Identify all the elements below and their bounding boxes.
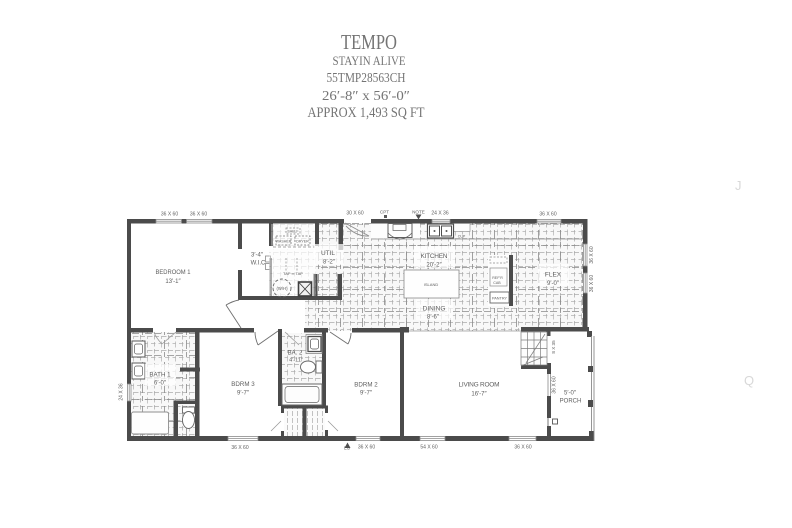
svg-text:WASHER: WASHER xyxy=(276,240,292,244)
svg-text:J: J xyxy=(735,178,742,193)
svg-text:16′-7″: 16′-7″ xyxy=(471,392,487,398)
svg-text:REF’R: REF’R xyxy=(492,276,503,280)
svg-text:20′-2″: 20′-2″ xyxy=(426,263,442,269)
svg-text:BEDROOM 1: BEDROOM 1 xyxy=(156,269,191,276)
svg-text:8′-6″: 8′-6″ xyxy=(427,315,440,321)
svg-text:LIVING ROOM: LIVING ROOM xyxy=(459,382,500,389)
svg-text:30 X 60: 30 X 60 xyxy=(346,211,363,217)
svg-text:CPT: CPT xyxy=(380,210,389,215)
svg-text:36 X 60: 36 X 60 xyxy=(231,445,248,451)
svg-text:SHELF: SHELF xyxy=(288,230,299,234)
svg-text:6′-0″: 6′-0″ xyxy=(154,381,167,387)
svg-text:13′-1″: 13′-1″ xyxy=(165,279,181,285)
svg-text:NOTE: NOTE xyxy=(412,210,425,215)
svg-text:36 X 60: 36 X 60 xyxy=(539,212,556,218)
svg-text:36 X 60: 36 X 60 xyxy=(358,445,375,451)
svg-text:36 X 60: 36 X 60 xyxy=(552,376,558,393)
svg-text:4′-11″: 4′-11″ xyxy=(289,358,303,364)
svg-text:STAYIN ALIVE: STAYIN ALIVE xyxy=(333,54,406,68)
svg-text:TAP ═ TAP: TAP ═ TAP xyxy=(283,271,303,276)
svg-text:54 X 60: 54 X 60 xyxy=(420,445,437,451)
svg-text:BDRM 3: BDRM 3 xyxy=(231,381,255,388)
svg-text:8′-2″: 8′-2″ xyxy=(323,260,336,266)
svg-text:24 X 36: 24 X 36 xyxy=(119,383,125,400)
svg-text:DINING: DINING xyxy=(423,306,446,313)
svg-text:TEMPO: TEMPO xyxy=(341,30,397,54)
svg-text:8 X 35: 8 X 35 xyxy=(551,340,556,354)
svg-text:36 X 60: 36 X 60 xyxy=(514,445,531,451)
svg-text:APPROX 1,493 SQ FT: APPROX 1,493 SQ FT xyxy=(308,105,425,121)
svg-text:PANTRY: PANTRY xyxy=(492,297,508,301)
svg-text:36 X 60: 36 X 60 xyxy=(161,212,178,218)
svg-text:3′-4″: 3′-4″ xyxy=(251,253,264,259)
svg-text:Q: Q xyxy=(744,373,754,388)
svg-text:BDRM 2: BDRM 2 xyxy=(354,382,378,389)
svg-text:FLEX: FLEX xyxy=(545,272,562,279)
svg-text:ISLAND: ISLAND xyxy=(424,282,439,287)
svg-text:9′-7″: 9′-7″ xyxy=(360,391,373,397)
svg-text:5′-0″: 5′-0″ xyxy=(564,391,577,397)
svg-text:55TMP28563CH: 55TMP28563CH xyxy=(327,71,406,86)
svg-text:BATH 1: BATH 1 xyxy=(149,372,171,379)
svg-text:9′-7″: 9′-7″ xyxy=(237,391,250,397)
svg-text:CUP: CUP xyxy=(458,235,466,239)
svg-text:9′-0″: 9′-0″ xyxy=(547,281,560,287)
svg-text:DRYER: DRYER xyxy=(296,240,309,244)
svg-text:36 X 60: 36 X 60 xyxy=(589,246,595,263)
svg-text:BA. 2: BA. 2 xyxy=(288,351,303,357)
svg-text:36 X 60: 36 X 60 xyxy=(190,212,207,218)
svg-text:W.I.C: W.I.C xyxy=(251,261,266,267)
svg-text:UTIL: UTIL xyxy=(321,250,335,257)
svg-text:24 X 36: 24 X 36 xyxy=(431,211,448,217)
svg-text:KITCHEN: KITCHEN xyxy=(421,253,448,260)
svg-text:36 X 60: 36 X 60 xyxy=(589,275,595,292)
svg-text:PORCH: PORCH xyxy=(560,399,582,405)
svg-text:(W/H): (W/H) xyxy=(277,286,289,291)
svg-text:CAB: CAB xyxy=(493,281,501,285)
svg-text:26′-8″ x 56′-0″: 26′-8″ x 56′-0″ xyxy=(322,89,410,104)
